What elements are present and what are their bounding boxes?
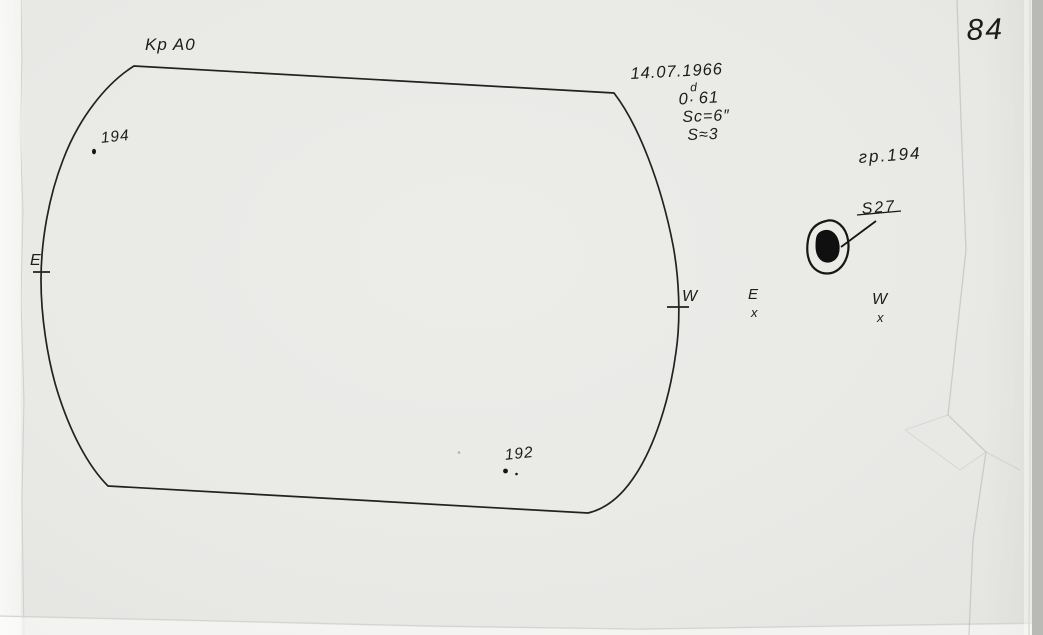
disk-east-label: E bbox=[30, 252, 42, 270]
group-194-number: 194 bbox=[100, 127, 131, 148]
detail-west-x-mark: x bbox=[877, 310, 885, 325]
disk-west-label: W bbox=[682, 288, 698, 306]
group-192-number: 192 bbox=[504, 444, 535, 465]
drawing-layer bbox=[0, 0, 1043, 635]
page-number: 84 bbox=[966, 13, 1005, 48]
crease-kinks bbox=[905, 415, 1020, 470]
observatory-code-label: Kp A0 bbox=[145, 35, 196, 55]
sunspot-dot-group194 bbox=[92, 149, 96, 155]
seeing-label: S≈3 bbox=[687, 126, 719, 145]
detail-east-x-mark: x bbox=[751, 305, 759, 320]
vertical-crease bbox=[948, 0, 986, 635]
sunspot-umbra bbox=[816, 230, 839, 262]
solar-disk-outline bbox=[41, 66, 679, 513]
day-fraction-label: 0.d61 bbox=[678, 86, 720, 110]
scanner-edge-band bbox=[1032, 0, 1043, 635]
detail-spot-label: S27 bbox=[861, 198, 897, 219]
sunspot-dot-group192-a bbox=[503, 469, 508, 474]
detail-east-label: E bbox=[748, 286, 759, 303]
day-fraction-superscript: .d bbox=[688, 87, 699, 104]
scanned-observation-sheet: Kp A0 84 14.07.1966 0.d61 Sc=6″ S≈3 194 … bbox=[0, 0, 1043, 635]
right-edge-highlight bbox=[1024, 0, 1032, 635]
left-margin-strip bbox=[0, 0, 21, 635]
sunspot-dot-group192-b bbox=[515, 473, 518, 476]
faint-speck bbox=[458, 451, 461, 454]
day-fraction-digits: 61 bbox=[698, 88, 719, 107]
detail-west-label: W bbox=[872, 291, 888, 309]
scale-label: Sc=6″ bbox=[682, 107, 730, 127]
